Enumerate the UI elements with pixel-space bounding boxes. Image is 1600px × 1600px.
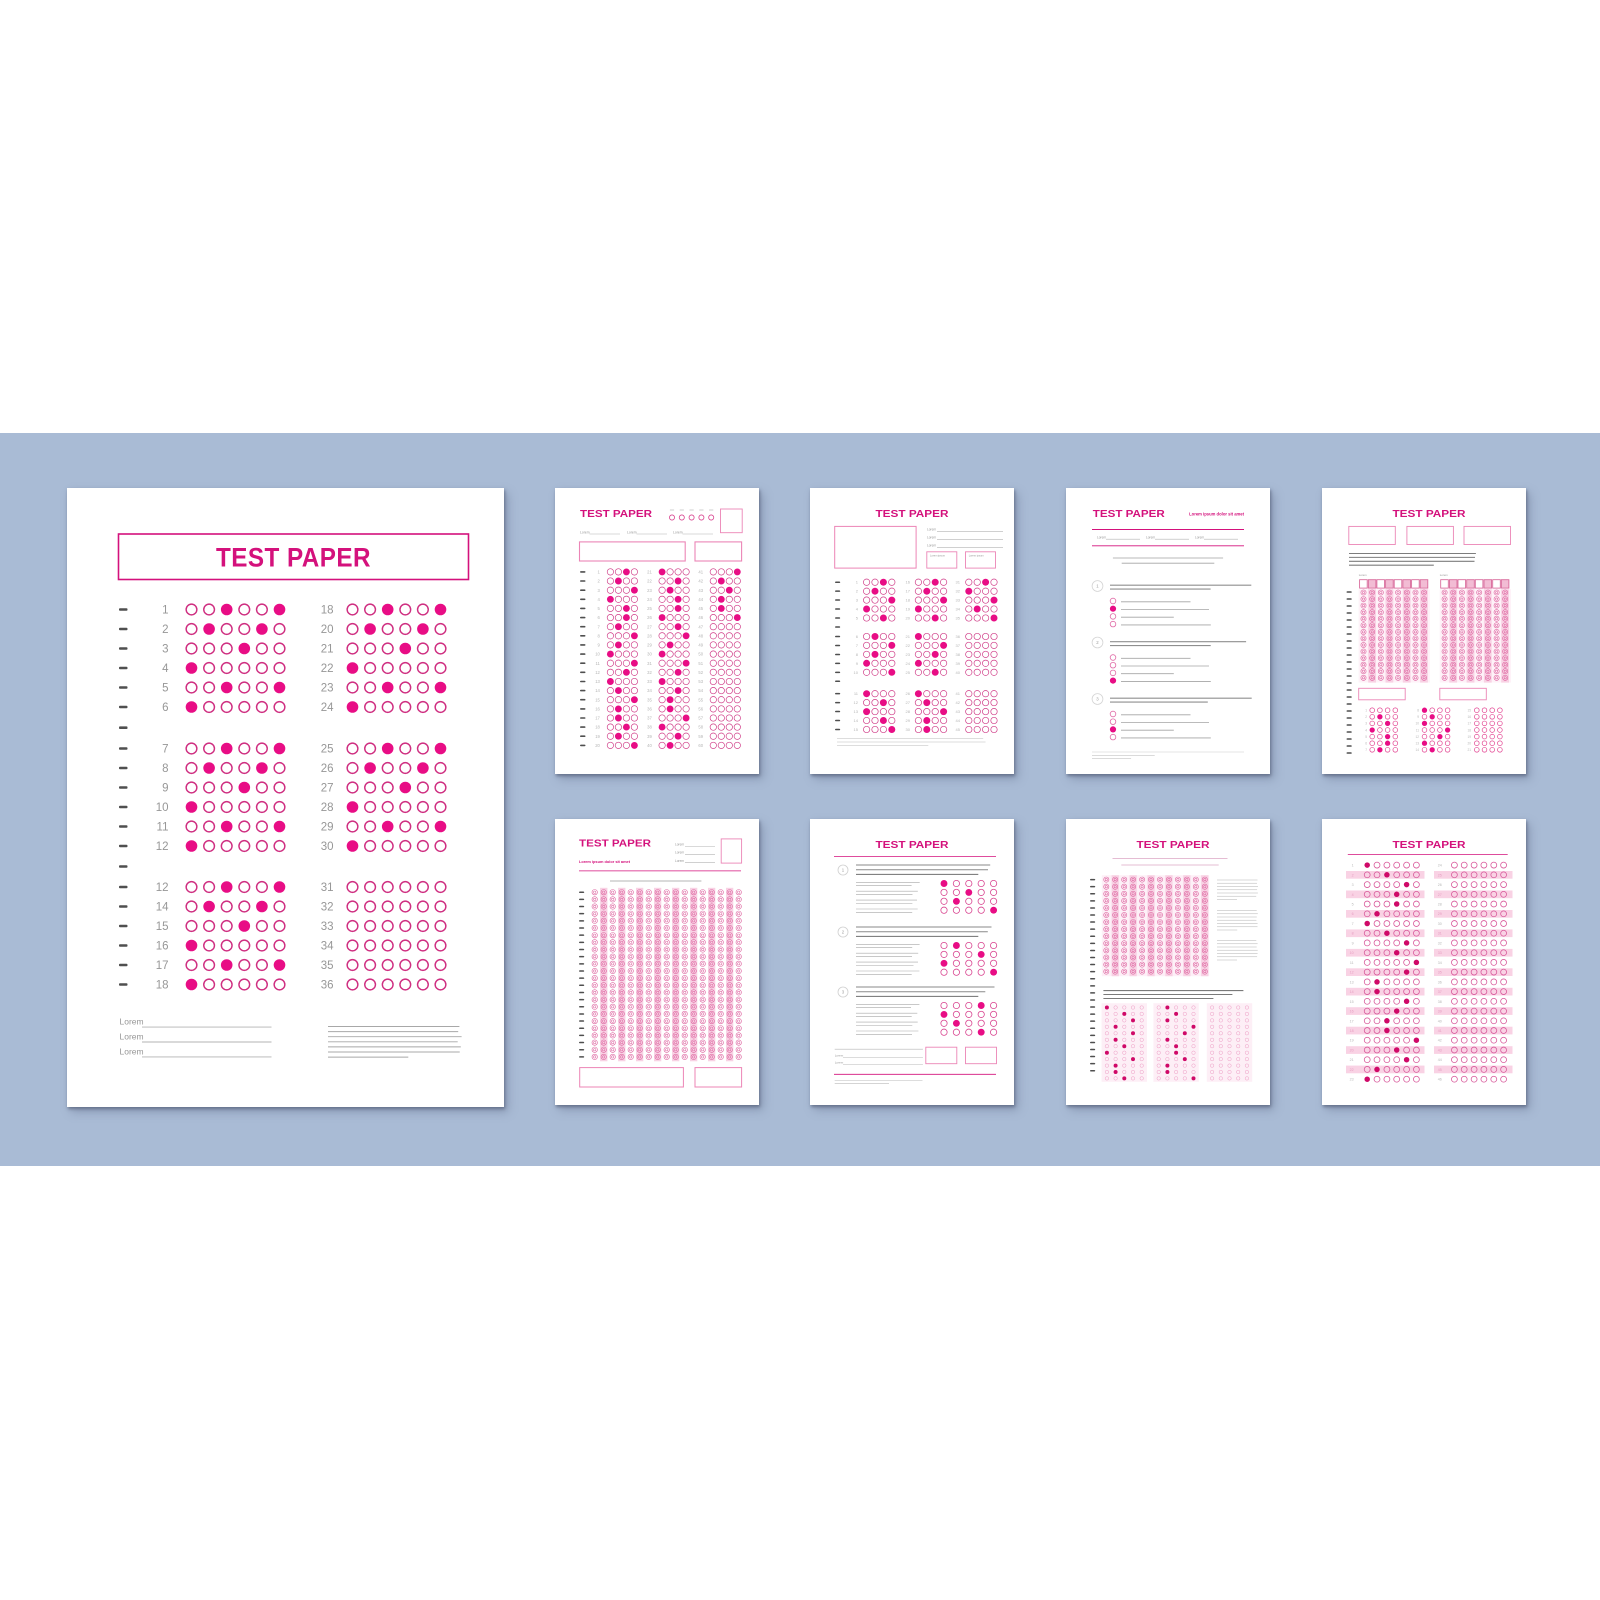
- svg-text:2: 2: [598, 578, 601, 583]
- svg-text:33: 33: [647, 679, 652, 684]
- svg-text:35: 35: [647, 697, 652, 702]
- svg-text:20: 20: [1467, 741, 1471, 745]
- svg-text:25: 25: [1438, 873, 1442, 877]
- svg-text:12: 12: [1350, 971, 1354, 975]
- svg-text:Lorem ipsum dolor sit amet: Lorem ipsum dolor sit amet: [1189, 511, 1245, 516]
- svg-text:48: 48: [698, 633, 703, 638]
- svg-text:58: 58: [698, 724, 703, 729]
- svg-text:7: 7: [1365, 748, 1367, 752]
- svg-text:34: 34: [956, 606, 961, 611]
- svg-text:5: 5: [1352, 903, 1354, 907]
- svg-text:28: 28: [647, 633, 652, 638]
- svg-text:1: 1: [162, 604, 168, 616]
- svg-text:TEST PAPER: TEST PAPER: [1393, 509, 1467, 520]
- svg-text:57: 57: [698, 715, 703, 720]
- svg-text:7: 7: [598, 624, 601, 629]
- svg-text:35: 35: [956, 615, 961, 620]
- svg-text:59: 59: [698, 733, 703, 738]
- svg-text:36: 36: [647, 706, 652, 711]
- svg-text:5: 5: [598, 606, 601, 611]
- svg-text:31: 31: [1438, 932, 1442, 936]
- svg-text:32: 32: [647, 669, 652, 674]
- svg-text:26: 26: [1438, 883, 1442, 887]
- svg-text:33: 33: [1438, 951, 1442, 955]
- svg-text:39: 39: [956, 660, 961, 665]
- svg-text:11: 11: [1350, 961, 1354, 965]
- svg-text:11: 11: [156, 821, 168, 833]
- svg-text:38: 38: [647, 724, 652, 729]
- svg-text:10: 10: [155, 802, 168, 814]
- svg-text:6: 6: [1352, 912, 1354, 916]
- svg-text:27: 27: [647, 624, 652, 629]
- svg-text:60: 60: [698, 743, 703, 748]
- svg-text:28: 28: [320, 802, 333, 814]
- svg-text:22: 22: [647, 578, 652, 583]
- svg-text:8: 8: [598, 633, 601, 638]
- svg-text:24: 24: [906, 660, 911, 665]
- svg-text:12: 12: [595, 669, 600, 674]
- svg-text:15: 15: [854, 727, 859, 732]
- svg-text:Lorem: Lorem: [927, 535, 936, 539]
- svg-text:29: 29: [320, 821, 333, 833]
- svg-text:17: 17: [906, 588, 911, 593]
- svg-text:19: 19: [595, 733, 600, 738]
- svg-text:20: 20: [595, 743, 600, 748]
- svg-text:15: 15: [1350, 1000, 1354, 1004]
- svg-text:6: 6: [856, 634, 859, 639]
- svg-text:47: 47: [698, 624, 703, 629]
- svg-text:3: 3: [856, 597, 859, 602]
- svg-text:46: 46: [1438, 1078, 1442, 1082]
- svg-text:22: 22: [906, 642, 911, 647]
- svg-text:TEST PAPER: TEST PAPER: [876, 509, 950, 520]
- svg-text:15: 15: [595, 697, 600, 702]
- svg-text:40: 40: [1438, 1019, 1442, 1023]
- svg-text:14: 14: [854, 718, 859, 723]
- svg-text:18: 18: [1350, 1029, 1354, 1033]
- svg-text:35: 35: [1438, 971, 1442, 975]
- svg-text:4: 4: [598, 596, 601, 601]
- svg-text:16: 16: [595, 706, 600, 711]
- svg-text:10: 10: [1415, 721, 1419, 725]
- svg-text:19: 19: [1350, 1039, 1354, 1043]
- svg-text:17: 17: [1350, 1019, 1354, 1023]
- svg-text:26: 26: [320, 763, 333, 775]
- svg-text:8: 8: [162, 763, 168, 775]
- svg-text:2: 2: [162, 624, 168, 636]
- svg-text:30: 30: [1438, 922, 1442, 926]
- svg-text:Lorem ipsum: Lorem ipsum: [969, 553, 984, 557]
- svg-text:3: 3: [1352, 883, 1354, 887]
- svg-text:17: 17: [155, 960, 168, 972]
- svg-text:9: 9: [1417, 715, 1419, 719]
- svg-text:11: 11: [596, 660, 601, 665]
- svg-text:Lorem: Lorem: [1195, 535, 1204, 539]
- svg-text:51: 51: [698, 660, 703, 665]
- svg-text:36: 36: [320, 979, 333, 991]
- svg-text:Lorem: Lorem: [835, 1054, 844, 1058]
- svg-text:52: 52: [698, 669, 703, 674]
- svg-text:2: 2: [1352, 873, 1354, 877]
- svg-text:1: 1: [1365, 708, 1367, 712]
- svg-text:39: 39: [647, 733, 652, 738]
- svg-text:10: 10: [595, 651, 600, 656]
- svg-text:33: 33: [320, 921, 333, 933]
- svg-text:Lorem: Lorem: [119, 1016, 143, 1026]
- svg-text:26: 26: [647, 615, 652, 620]
- svg-text:50: 50: [698, 651, 703, 656]
- svg-text:41: 41: [956, 691, 961, 696]
- svg-text:27: 27: [1438, 893, 1442, 897]
- svg-text:14: 14: [595, 688, 600, 693]
- svg-text:24: 24: [320, 702, 333, 714]
- svg-text:32: 32: [320, 901, 333, 913]
- svg-text:13: 13: [1415, 741, 1419, 745]
- svg-text:6: 6: [162, 702, 168, 714]
- svg-text:1: 1: [842, 868, 845, 873]
- svg-text:1: 1: [598, 569, 601, 574]
- svg-text:18: 18: [1467, 728, 1471, 732]
- svg-text:26: 26: [906, 691, 911, 696]
- svg-text:34: 34: [320, 940, 333, 952]
- svg-text:43: 43: [698, 587, 703, 592]
- svg-text:44: 44: [698, 596, 703, 601]
- svg-text:30: 30: [320, 841, 333, 853]
- svg-text:20: 20: [320, 624, 333, 636]
- svg-text:45: 45: [698, 606, 703, 611]
- svg-text:16: 16: [1467, 715, 1471, 719]
- svg-text:36: 36: [1438, 980, 1442, 984]
- svg-text:13: 13: [1350, 980, 1354, 984]
- svg-text:21: 21: [320, 643, 333, 655]
- svg-text:Lorem: Lorem: [1146, 535, 1155, 539]
- svg-text:3: 3: [162, 643, 168, 655]
- svg-text:31: 31: [956, 579, 961, 584]
- svg-text:4: 4: [1352, 893, 1354, 897]
- svg-text:25: 25: [906, 669, 911, 674]
- svg-text:40: 40: [956, 669, 961, 674]
- svg-text:49: 49: [698, 642, 703, 647]
- svg-text:1: 1: [1096, 583, 1099, 588]
- svg-text:5: 5: [162, 682, 168, 694]
- svg-text:15: 15: [155, 921, 168, 933]
- svg-text:16: 16: [155, 940, 168, 952]
- svg-text:23: 23: [320, 682, 333, 694]
- svg-text:17: 17: [1467, 721, 1471, 725]
- svg-text:16: 16: [1350, 1010, 1354, 1014]
- svg-text:13: 13: [595, 679, 600, 684]
- svg-text:32: 32: [1438, 941, 1442, 945]
- svg-text:7: 7: [1352, 922, 1354, 926]
- svg-text:56: 56: [698, 706, 703, 711]
- svg-text:44: 44: [956, 718, 961, 723]
- svg-text:17: 17: [595, 715, 600, 720]
- svg-text:4: 4: [1365, 728, 1367, 732]
- svg-text:TEST PAPER: TEST PAPER: [216, 542, 371, 572]
- svg-text:18: 18: [155, 979, 168, 991]
- svg-text:12: 12: [854, 700, 859, 705]
- svg-text:14: 14: [1350, 990, 1354, 994]
- svg-text:2: 2: [1096, 640, 1099, 645]
- svg-text:32: 32: [956, 588, 961, 593]
- svg-text:1: 1: [1352, 864, 1354, 868]
- svg-text:4: 4: [162, 663, 169, 675]
- svg-text:33: 33: [956, 597, 961, 602]
- svg-text:Lorem: Lorem: [927, 527, 936, 531]
- svg-text:21: 21: [1467, 748, 1471, 752]
- svg-text:Lorem: Lorem: [119, 1046, 143, 1056]
- svg-text:37: 37: [956, 642, 961, 647]
- svg-text:8: 8: [856, 651, 859, 656]
- svg-text:45: 45: [956, 727, 961, 732]
- svg-text:5: 5: [1365, 734, 1367, 738]
- svg-text:7: 7: [856, 642, 859, 647]
- svg-text:Lorem: Lorem: [675, 859, 684, 863]
- svg-text:55: 55: [698, 697, 703, 702]
- svg-text:43: 43: [1438, 1049, 1442, 1053]
- svg-text:TEST PAPER: TEST PAPER: [1093, 509, 1166, 520]
- svg-text:4: 4: [856, 606, 859, 611]
- svg-text:10: 10: [1350, 951, 1354, 955]
- svg-text:2: 2: [842, 930, 845, 935]
- svg-text:20: 20: [1350, 1049, 1354, 1053]
- svg-text:27: 27: [320, 782, 333, 794]
- svg-text:18: 18: [906, 597, 911, 602]
- svg-text:6: 6: [598, 615, 601, 620]
- svg-text:TEST PAPER: TEST PAPER: [1137, 840, 1211, 851]
- svg-text:2: 2: [856, 588, 859, 593]
- svg-text:3: 3: [598, 587, 601, 592]
- svg-text:Lorem: Lorem: [119, 1031, 143, 1041]
- svg-text:35: 35: [320, 960, 333, 972]
- svg-text:Lorem ipsum dolor sit amet: Lorem ipsum dolor sit amet: [579, 859, 631, 864]
- svg-text:20: 20: [906, 615, 911, 620]
- svg-text:30: 30: [906, 727, 911, 732]
- svg-text:3: 3: [1096, 696, 1099, 701]
- svg-text:27: 27: [906, 700, 911, 705]
- svg-text:54: 54: [698, 688, 703, 693]
- svg-text:Lorem: Lorem: [675, 843, 684, 847]
- svg-text:42: 42: [956, 700, 961, 705]
- svg-text:9: 9: [1352, 941, 1354, 945]
- svg-text:25: 25: [320, 743, 333, 755]
- svg-text:11: 11: [854, 691, 859, 696]
- svg-text:Lorem: Lorem: [835, 1061, 844, 1065]
- svg-text:Lorem: Lorem: [675, 851, 684, 855]
- svg-text:3: 3: [842, 990, 845, 995]
- svg-text:23: 23: [906, 651, 911, 656]
- svg-text:TEST PAPER: TEST PAPER: [876, 840, 950, 851]
- svg-text:18: 18: [320, 604, 333, 616]
- svg-text:11: 11: [1416, 728, 1420, 732]
- svg-text:16: 16: [906, 579, 911, 584]
- svg-text:9: 9: [598, 642, 601, 647]
- svg-text:3: 3: [1365, 721, 1367, 725]
- svg-text:9: 9: [856, 660, 859, 665]
- svg-text:24: 24: [1438, 864, 1442, 868]
- svg-text:42: 42: [1438, 1039, 1442, 1043]
- svg-text:28: 28: [906, 709, 911, 714]
- svg-text:46: 46: [698, 615, 703, 620]
- svg-text:Lorem: Lorem: [1097, 535, 1106, 539]
- svg-text:14: 14: [155, 901, 168, 913]
- svg-text:29: 29: [647, 642, 652, 647]
- svg-text:29: 29: [1438, 912, 1442, 916]
- svg-text:9: 9: [162, 782, 168, 794]
- svg-text:53: 53: [698, 679, 703, 684]
- svg-text:2: 2: [1365, 715, 1367, 719]
- svg-text:19: 19: [906, 606, 911, 611]
- svg-text:28: 28: [1438, 903, 1442, 907]
- svg-text:21: 21: [906, 634, 911, 639]
- svg-text:12: 12: [1415, 734, 1419, 738]
- svg-text:8: 8: [1417, 708, 1419, 712]
- svg-text:25: 25: [647, 606, 652, 611]
- svg-text:Lorem: Lorem: [1359, 573, 1368, 577]
- svg-text:19: 19: [1467, 734, 1471, 738]
- svg-text:Lorem: Lorem: [627, 530, 637, 534]
- svg-text:Lorem: Lorem: [580, 530, 590, 534]
- svg-text:23: 23: [1350, 1078, 1354, 1082]
- svg-text:5: 5: [856, 615, 859, 620]
- svg-text:37: 37: [1438, 990, 1442, 994]
- svg-text:44: 44: [1438, 1058, 1442, 1062]
- svg-text:45: 45: [1438, 1068, 1442, 1072]
- svg-text:34: 34: [647, 688, 652, 693]
- svg-text:Lorem: Lorem: [1440, 573, 1449, 577]
- svg-text:38: 38: [1438, 1000, 1442, 1004]
- svg-text:21: 21: [1350, 1058, 1354, 1062]
- svg-text:TEST PAPER: TEST PAPER: [1393, 840, 1467, 851]
- svg-text:8: 8: [1352, 932, 1354, 936]
- svg-text:40: 40: [647, 743, 652, 748]
- svg-text:13: 13: [854, 709, 859, 714]
- svg-text:31: 31: [647, 660, 652, 665]
- svg-text:34: 34: [1438, 961, 1442, 965]
- svg-text:39: 39: [1438, 1010, 1442, 1014]
- svg-text:14: 14: [1415, 748, 1419, 752]
- svg-text:22: 22: [320, 663, 333, 675]
- svg-text:22: 22: [1350, 1068, 1354, 1072]
- svg-text:6: 6: [1365, 741, 1367, 745]
- svg-text:7: 7: [162, 743, 168, 755]
- svg-text:38: 38: [956, 651, 961, 656]
- svg-text:31: 31: [320, 882, 333, 894]
- svg-text:29: 29: [906, 718, 911, 723]
- svg-text:43: 43: [956, 709, 961, 714]
- svg-text:23: 23: [647, 587, 652, 592]
- svg-text:42: 42: [698, 578, 703, 583]
- svg-text:41: 41: [1438, 1029, 1442, 1033]
- svg-text:30: 30: [647, 651, 652, 656]
- svg-text:Lorem: Lorem: [927, 543, 936, 547]
- svg-text:TEST PAPER: TEST PAPER: [580, 509, 653, 520]
- svg-text:37: 37: [647, 715, 652, 720]
- svg-text:24: 24: [647, 596, 652, 601]
- svg-text:21: 21: [647, 569, 652, 574]
- svg-text:TEST PAPER: TEST PAPER: [579, 839, 652, 850]
- svg-text:12: 12: [155, 882, 168, 894]
- svg-text:18: 18: [595, 724, 600, 729]
- svg-text:Lorem: Lorem: [673, 530, 683, 534]
- svg-text:1: 1: [856, 579, 859, 584]
- svg-text:10: 10: [854, 669, 859, 674]
- svg-text:12: 12: [155, 841, 168, 853]
- svg-text:Lorem ipsum: Lorem ipsum: [930, 553, 945, 557]
- svg-text:15: 15: [1467, 708, 1471, 712]
- svg-text:36: 36: [956, 634, 961, 639]
- svg-text:41: 41: [698, 569, 703, 574]
